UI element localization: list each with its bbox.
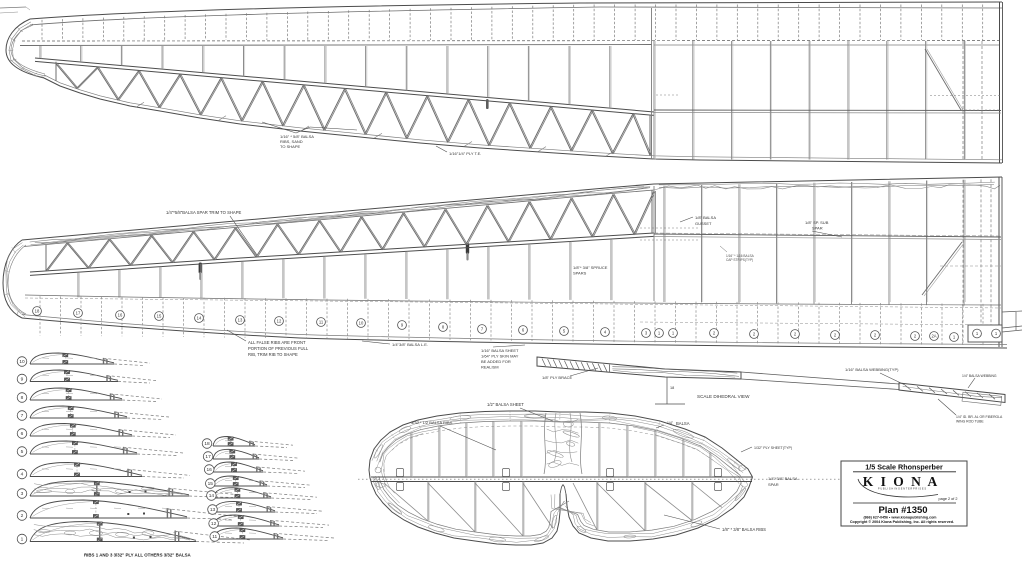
svg-text:11: 11 [212,534,217,540]
svg-text:18: 18 [35,309,40,314]
svg-text:1/16" BALSA WEBBING(TYP): 1/16" BALSA WEBBING(TYP) [845,367,899,372]
svg-text:1/5 Scale Rhonsperber: 1/5 Scale Rhonsperber [865,463,943,472]
svg-text:1/2" BALSA SHEET: 1/2" BALSA SHEET [487,402,524,407]
svg-text:1/8"* 3/8" SPRUCE: 1/8"* 3/8" SPRUCE [573,265,608,270]
svg-text:1: 1 [21,537,24,543]
svg-text:SCALE DIHEDRAL VIEW: SCALE DIHEDRAL VIEW [697,394,750,399]
svg-text:BALSA: BALSA [676,421,690,426]
svg-text:15: 15 [157,314,162,319]
svg-text:RIB, TRIM RIB TO SHAPE: RIB, TRIM RIB TO SHAPE [248,352,298,357]
svg-text:13: 13 [238,318,243,323]
svg-text:Plan #1350: Plan #1350 [878,505,927,516]
svg-text:1/16"1/4" PLY T.E.: 1/16"1/4" PLY T.E. [449,151,481,156]
svg-text:12: 12 [277,319,282,324]
svg-text:2: 2 [21,513,24,519]
svg-text:13: 13 [210,507,216,513]
svg-text:18: 18 [204,441,210,447]
svg-text:1/16" BALSA SHEET: 1/16" BALSA SHEET [481,348,519,353]
svg-text:1/4"3/8" BALSA L.E.: 1/4"3/8" BALSA L.E. [392,342,428,347]
svg-text:18: 18 [670,386,674,390]
svg-text:page 2 of 2: page 2 of 2 [938,497,957,501]
svg-text:1/32" PLY SHEET(TYP): 1/32" PLY SHEET(TYP) [754,446,792,450]
svg-text:5: 5 [21,449,24,455]
svg-text:1/4": 1/4" [667,421,674,425]
svg-text:SPARS: SPARS [573,271,587,276]
svg-text:TO SHAPE: TO SHAPE [280,144,300,149]
svg-text:4: 4 [21,472,24,478]
svg-text:1/8" SP. SUB: 1/8" SP. SUB [805,220,829,225]
svg-text:1/8" BALSA: 1/8" BALSA [695,215,716,220]
svg-text:15: 15 [208,481,214,487]
svg-text:10: 10 [19,359,25,365]
svg-text:1/8" PLY BRACE: 1/8" PLY BRACE [542,375,573,380]
svg-text:SPAR: SPAR [768,482,779,487]
svg-text:Copyright © 2004 Kiona Publish: Copyright © 2004 Kiona Publishing, Inc. … [850,520,954,524]
svg-text:8: 8 [21,395,24,401]
svg-text:SPAR: SPAR [812,226,823,231]
svg-text:ALL FALSE RIBS ARE FRONT: ALL FALSE RIBS ARE FRONT [248,340,306,345]
svg-text:12: 12 [211,521,217,527]
svg-text:17: 17 [76,311,81,316]
svg-text:14: 14 [197,316,202,321]
svg-text:14: 14 [209,493,215,499]
svg-text:RIBS 1 AND 3 3/32" PLY ALL OT: RIBS 1 AND 3 3/32" PLY ALL OTHERS 3/32" … [84,553,192,558]
svg-text:10: 10 [359,321,364,326]
svg-text:WING ROD TUBE: WING ROD TUBE [956,420,984,424]
svg-text:1/4"*3/8" BALSA: 1/4"*3/8" BALSA [768,476,798,481]
svg-text:16: 16 [207,467,213,473]
svg-text:17: 17 [205,454,211,460]
svg-text:1/4"*5/8"BALSA SPAR TRIM TO SH: 1/4"*5/8"BALSA SPAR TRIM TO SHAPE [166,210,241,215]
svg-text:7: 7 [21,413,24,419]
svg-text:16: 16 [118,313,123,318]
svg-text:GUSSET: GUSSET [695,221,712,226]
svg-text:P U B L I S H I N G E N T E: P U B L I S H I N G E N T E R P R I S E … [878,487,926,491]
svg-text:1/8" * 3/8" BALSA RIBS: 1/8" * 3/8" BALSA RIBS [722,527,766,532]
svg-text:3/32 * 1/2 BALSA RIBS: 3/32 * 1/2 BALSA RIBS [411,420,453,425]
svg-text:PORTION OF PREVIOUS FULL: PORTION OF PREVIOUS FULL [248,346,309,351]
svg-text:9: 9 [21,377,24,383]
svg-text:6: 6 [21,431,24,437]
svg-text:3: 3 [21,491,24,497]
svg-text:1/4" ID. BR. AL OR FIBERGLA: 1/4" ID. BR. AL OR FIBERGLA [956,415,1003,419]
svg-text:2A: 2A [931,334,936,339]
svg-text:REALISM: REALISM [481,365,499,370]
svg-text:1/4" BALSA WEBBING: 1/4" BALSA WEBBING [962,374,997,378]
svg-text:CAP STRIPS(TYP): CAP STRIPS(TYP) [726,258,753,262]
svg-text:BE ADDED FOR: BE ADDED FOR [481,359,511,364]
svg-text:11: 11 [319,320,324,325]
svg-text:1/64" PLY SKIN MAY: 1/64" PLY SKIN MAY [481,354,519,359]
